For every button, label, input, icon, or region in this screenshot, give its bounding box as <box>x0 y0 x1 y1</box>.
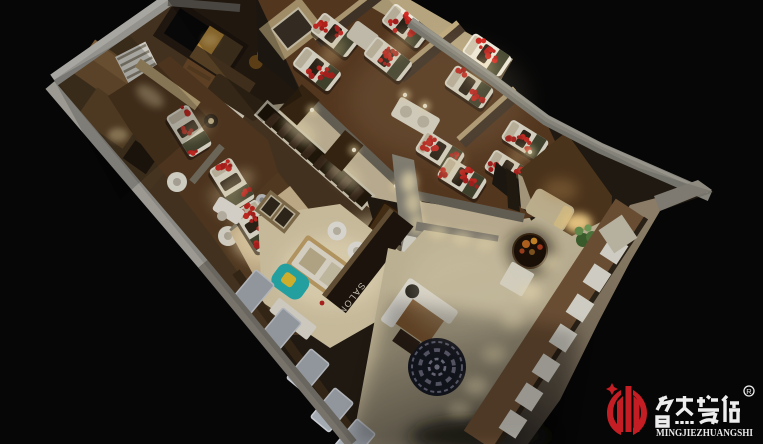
svg-text:R: R <box>746 387 752 396</box>
svg-text:MINGJIEZHUANGSHI: MINGJIEZHUANGSHI <box>656 428 753 439</box>
